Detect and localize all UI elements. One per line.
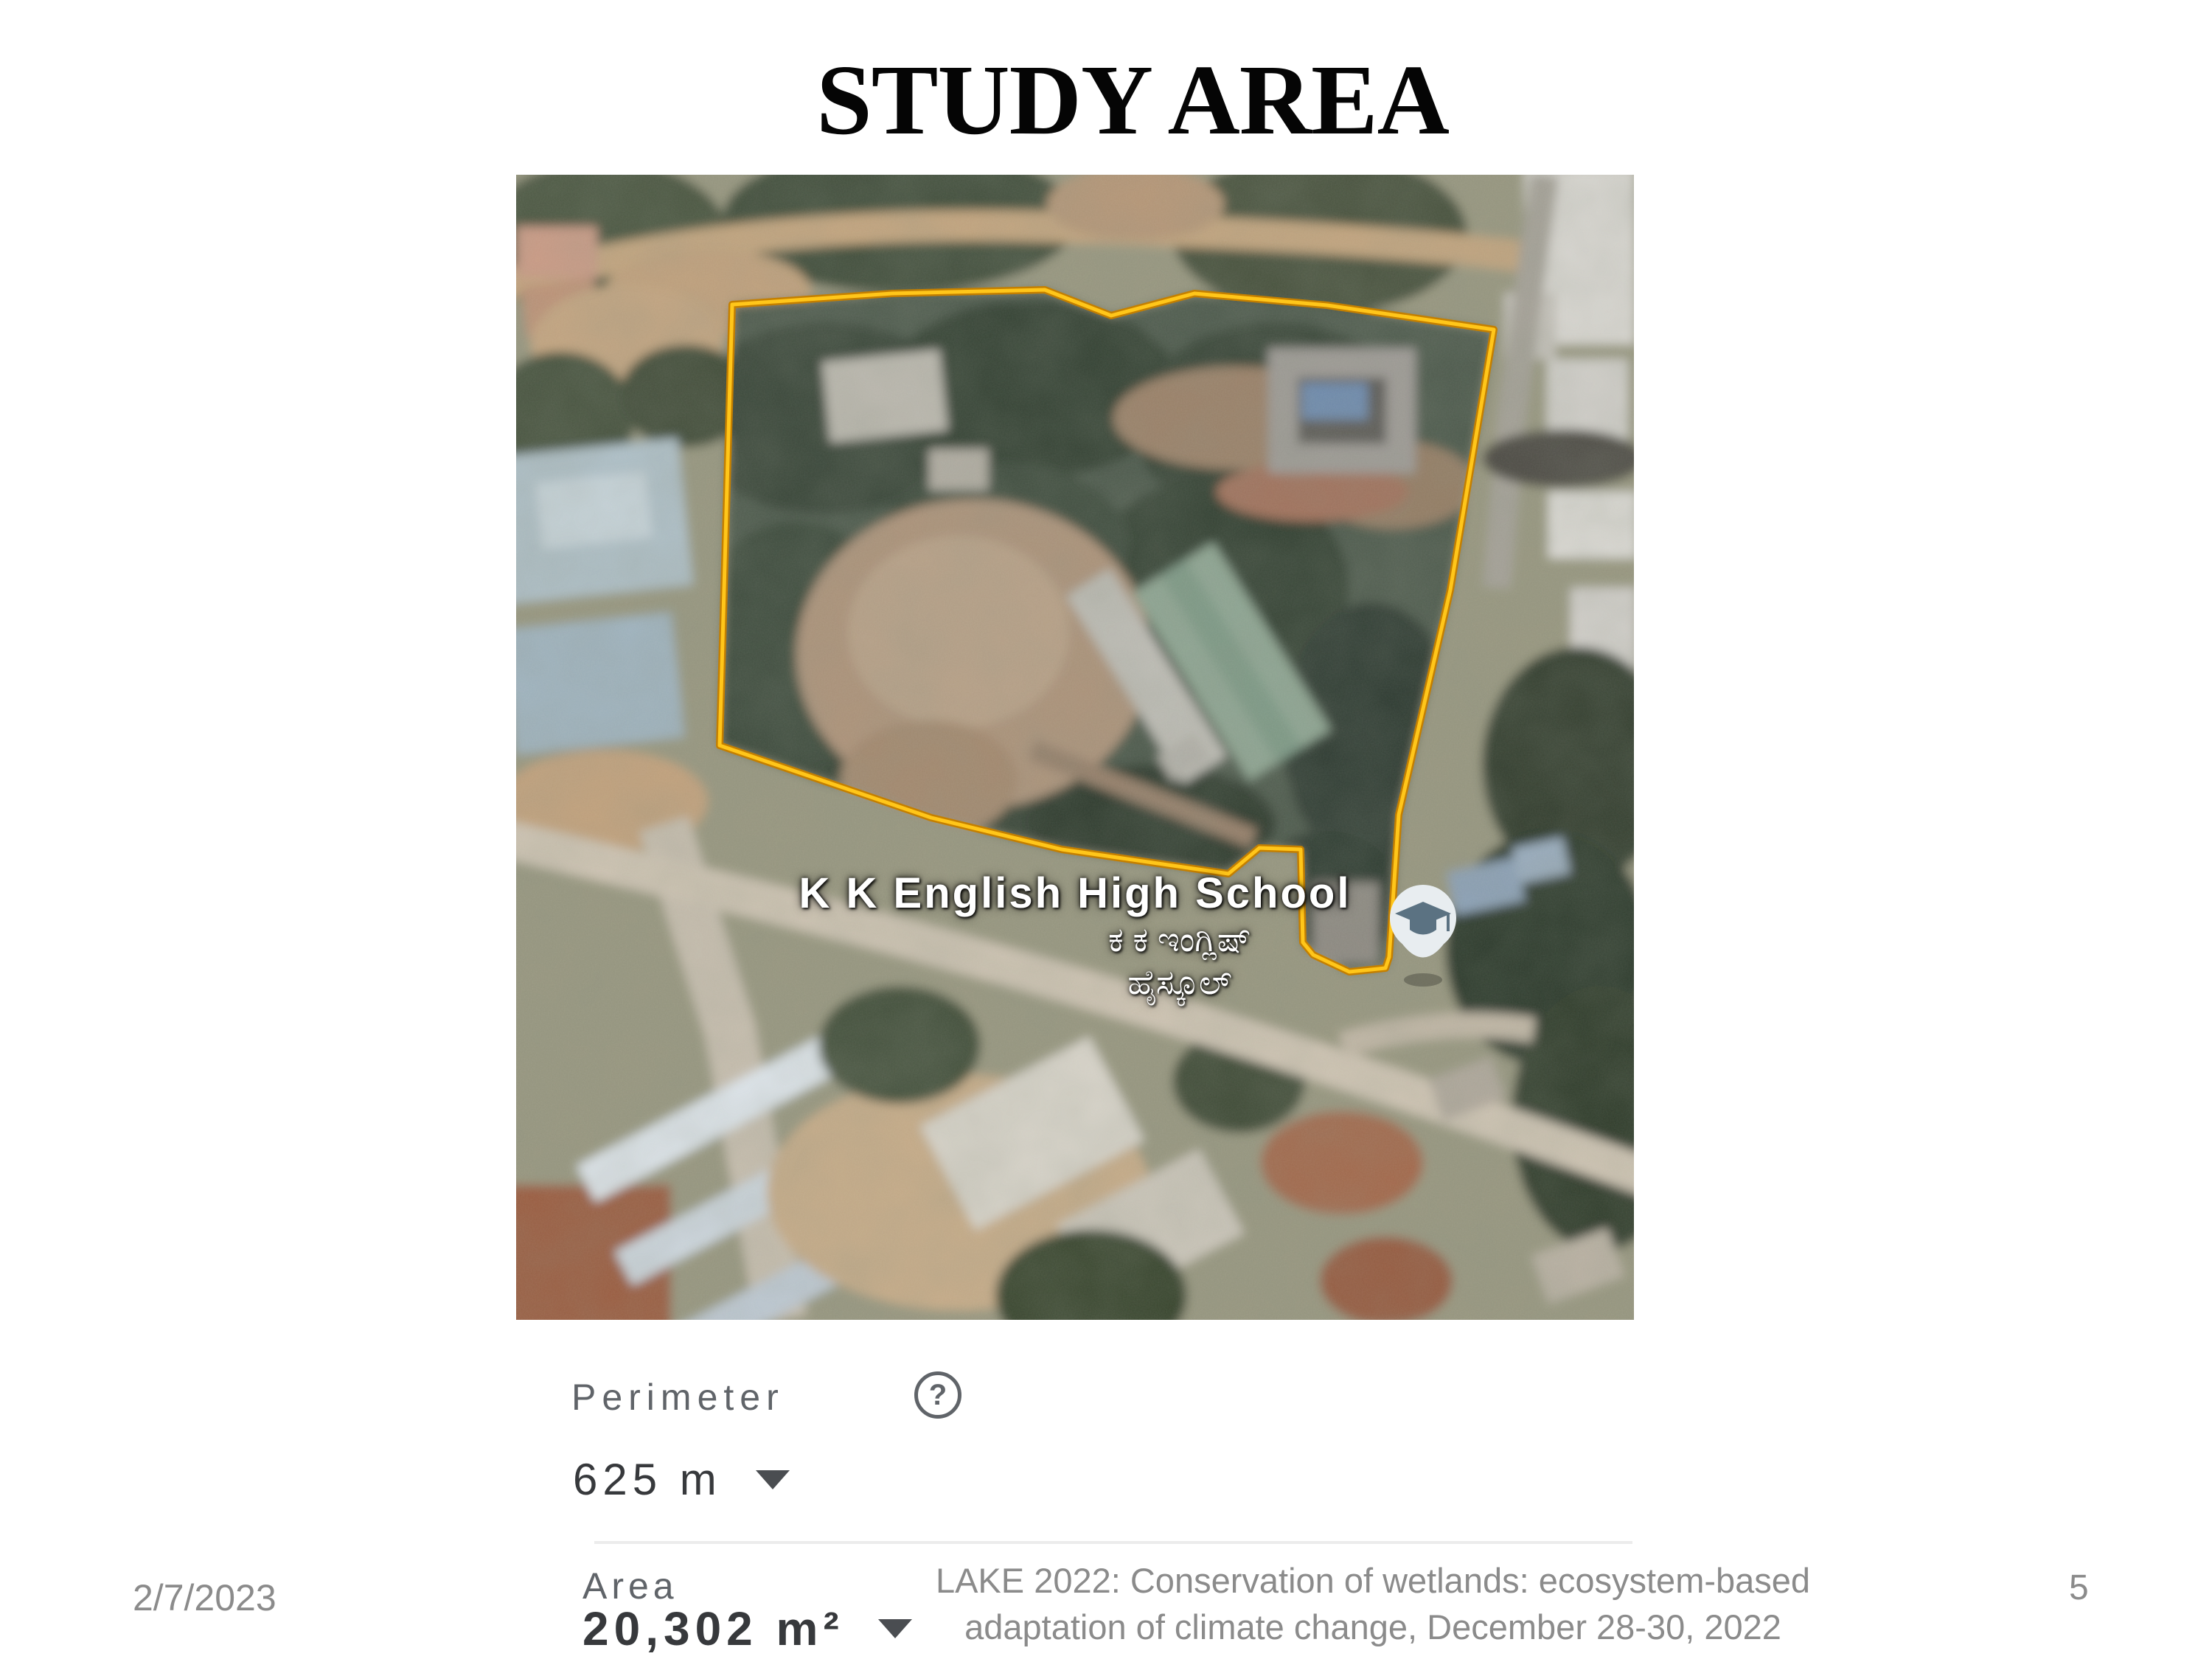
presentation-slide: STUDY AREA: [0, 0, 2212, 1659]
place-label-school: K K English High School: [799, 869, 1352, 918]
perimeter-label: Perimeter: [571, 1376, 785, 1419]
page-title: STUDY AREA: [816, 43, 1449, 158]
place-label-kannada-2: ಹೈಸ್ಕೂಲ್: [1127, 962, 1231, 1004]
perimeter-value-text: 625 m: [573, 1454, 722, 1505]
satellite-imagery: [516, 175, 1634, 1320]
footer-date: 2/7/2023: [133, 1576, 276, 1619]
panel-divider: [594, 1541, 1632, 1544]
satellite-map: K K English High School ಕ ಕ ಇಂಗ್ಲಿಷ್ ಹೈಸ…: [516, 175, 1634, 1320]
perimeter-value: 625 m: [573, 1454, 790, 1505]
footer-line-2: adaptation of climate change, December 2…: [936, 1604, 1810, 1650]
page-number: 5: [2069, 1568, 2089, 1608]
area-value: 20,302 m²: [582, 1601, 912, 1656]
place-label-kannada-1: ಕ ಕ ಇಂಗ್ಲಿಷ್: [1108, 919, 1251, 961]
dropdown-arrow-icon[interactable]: [878, 1619, 912, 1638]
dropdown-arrow-icon[interactable]: [756, 1470, 790, 1489]
help-glyph: ?: [929, 1379, 947, 1412]
footer-line-1: LAKE 2022: Conservation of wetlands: eco…: [936, 1557, 1810, 1604]
help-icon[interactable]: ?: [914, 1371, 961, 1419]
footer-text: LAKE 2022: Conservation of wetlands: eco…: [936, 1557, 1810, 1650]
area-value-text: 20,302 m²: [582, 1601, 844, 1656]
